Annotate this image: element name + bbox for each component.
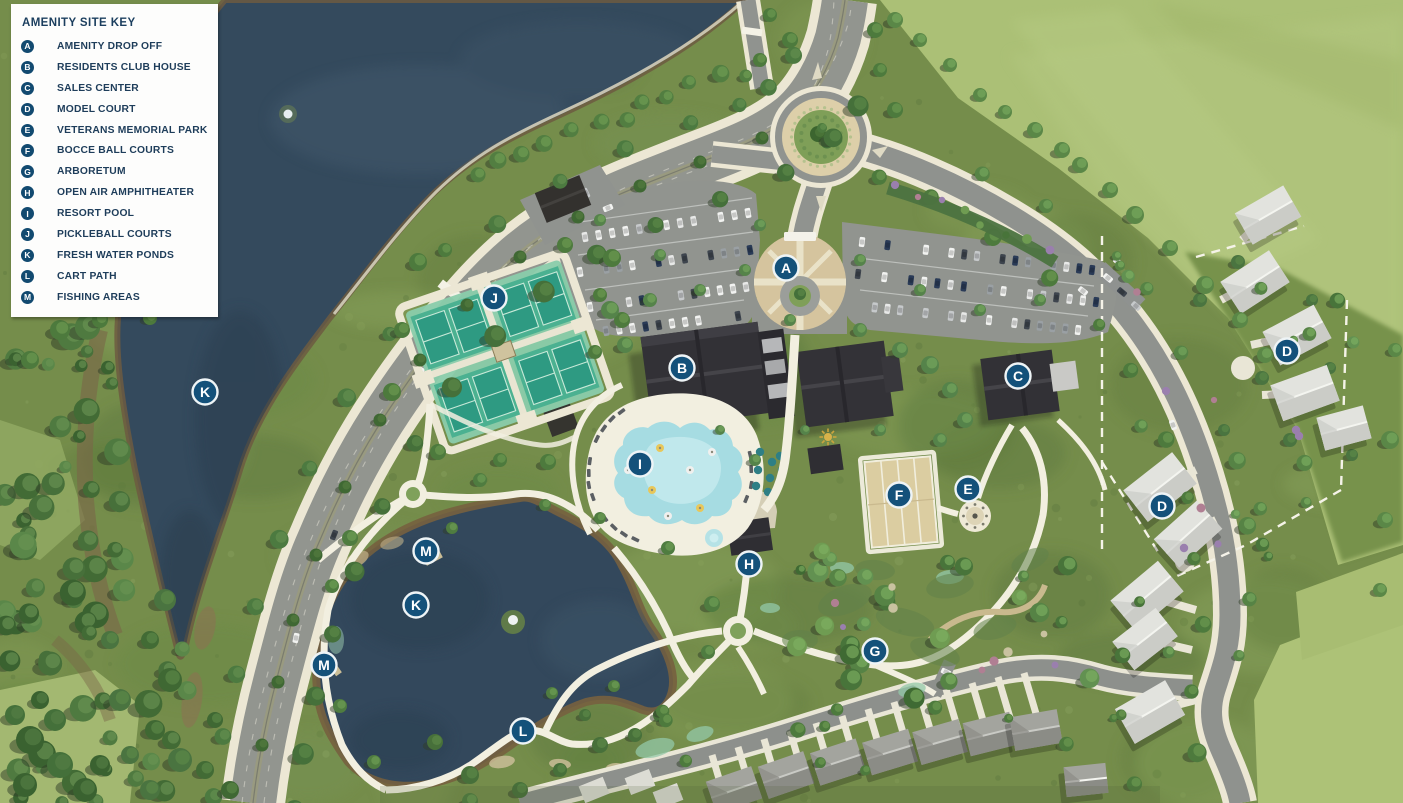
svg-text:C: C xyxy=(1013,368,1023,384)
svg-text:A: A xyxy=(781,260,791,276)
svg-text:L: L xyxy=(519,723,528,739)
svg-text:H: H xyxy=(744,556,754,572)
svg-text:F: F xyxy=(895,487,904,503)
svg-text:D: D xyxy=(1157,498,1167,514)
svg-text:K: K xyxy=(411,597,421,613)
svg-text:M: M xyxy=(318,657,330,673)
svg-text:K: K xyxy=(200,384,210,400)
svg-text:E: E xyxy=(963,481,972,497)
svg-text:D: D xyxy=(1282,343,1292,359)
svg-text:M: M xyxy=(420,543,432,559)
svg-text:J: J xyxy=(490,290,498,306)
svg-text:G: G xyxy=(870,643,881,659)
svg-text:B: B xyxy=(677,360,687,376)
svg-text:I: I xyxy=(638,456,642,472)
